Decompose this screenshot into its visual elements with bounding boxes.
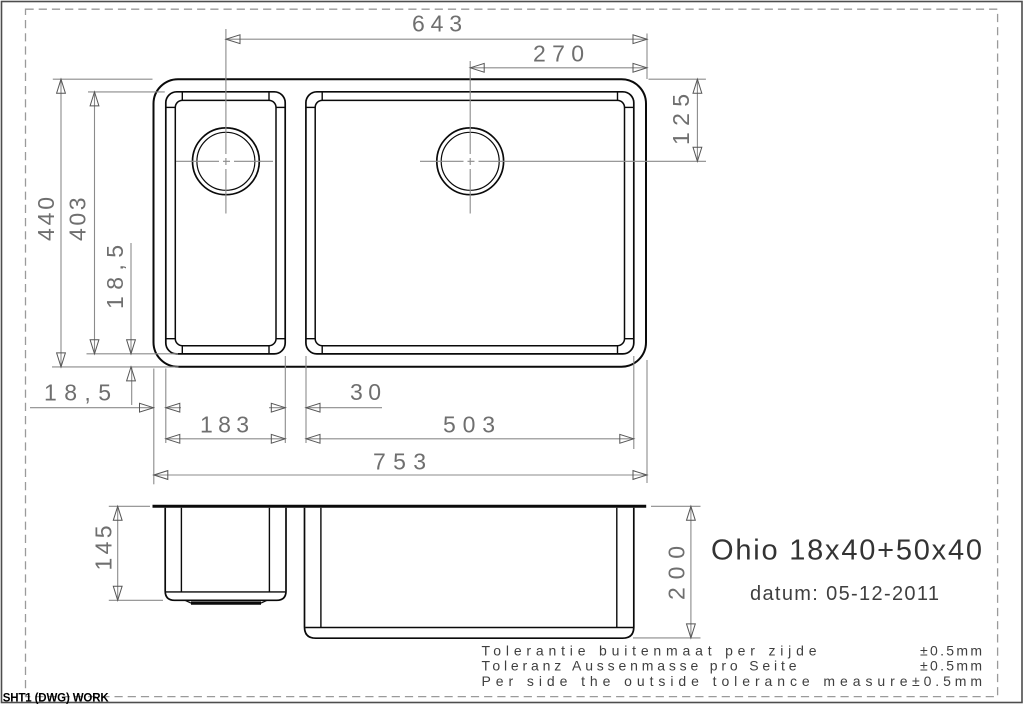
svg-text:±0.5mm: ±0.5mm <box>920 643 982 659</box>
svg-text:SHT1 (DWG) WORK: SHT1 (DWG) WORK <box>3 693 110 704</box>
svg-text:403: 403 <box>65 198 91 242</box>
svg-text:183: 183 <box>200 412 249 438</box>
svg-text:643: 643 <box>412 11 462 37</box>
svg-text:503: 503 <box>443 412 495 438</box>
svg-text:145: 145 <box>91 526 117 571</box>
svg-text:270: 270 <box>533 41 584 67</box>
svg-text:±0.5mm: ±0.5mm <box>920 658 982 674</box>
svg-text:datum: 05-12-2011: datum: 05-12-2011 <box>750 583 939 605</box>
svg-text:200: 200 <box>664 546 690 600</box>
svg-text:753: 753 <box>373 449 426 475</box>
svg-text:440: 440 <box>33 197 59 241</box>
svg-text:125: 125 <box>668 94 694 145</box>
